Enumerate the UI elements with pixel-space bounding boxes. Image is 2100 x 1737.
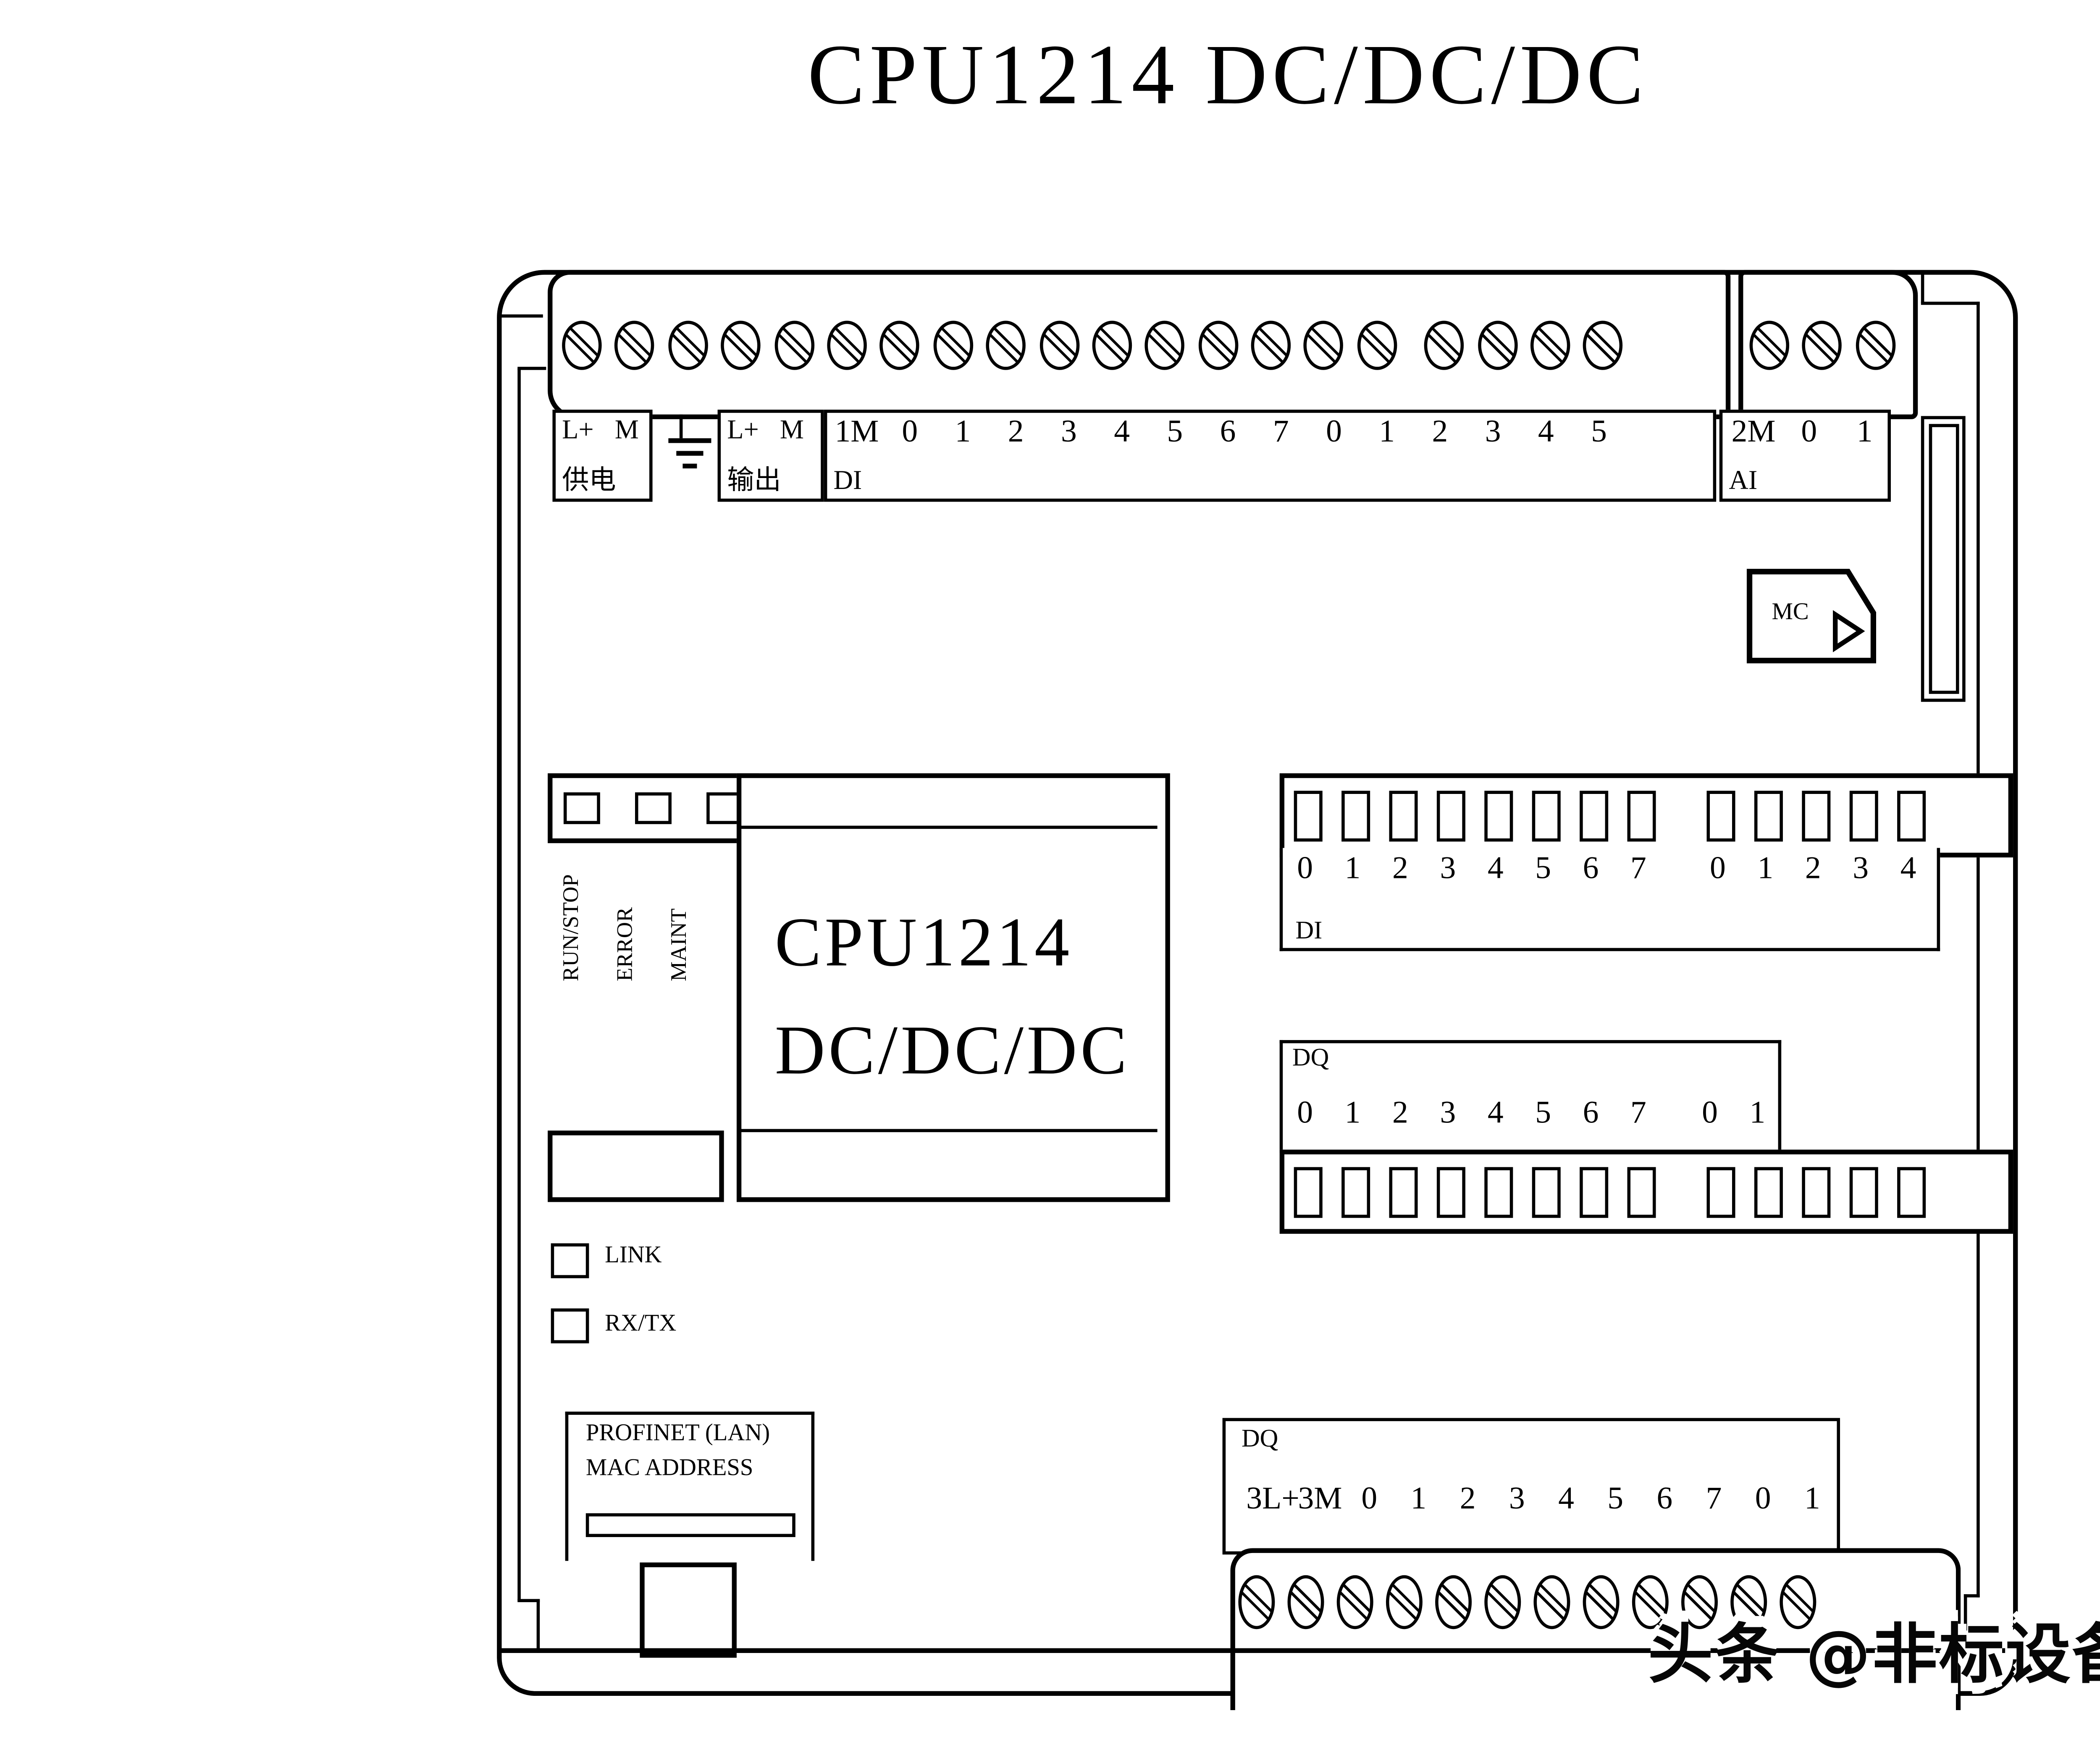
top-terminal-strip xyxy=(548,270,1730,419)
di-terminal-pins: 1M01234567012345 xyxy=(830,415,1625,451)
cpu-panel-divider-top xyxy=(740,826,1157,829)
screw-terminal-icon[interactable] xyxy=(1251,320,1291,369)
power-terminals: L+ M xyxy=(562,415,639,447)
channel-led-icon xyxy=(1341,790,1370,841)
channel-led-icon xyxy=(1294,1166,1323,1217)
cpu-panel-divider-bottom xyxy=(740,1129,1157,1133)
cpu-model-line1: CPU1214 xyxy=(775,902,1073,983)
channel-led-icon xyxy=(1802,790,1830,841)
left-step-line xyxy=(517,367,546,370)
channel-led-icon xyxy=(1850,1166,1878,1217)
right-lip-line xyxy=(1921,275,1924,303)
right-channel-line xyxy=(1977,302,1980,1597)
output-label-box: L+ M 输出 xyxy=(718,410,824,502)
dq-caption: DQ xyxy=(1292,1045,1329,1073)
status-led-box xyxy=(548,773,759,843)
screw-terminal-icon[interactable] xyxy=(880,320,920,369)
rxtx-led xyxy=(551,1309,589,1343)
mode-selector-box xyxy=(548,1130,724,1202)
screw-terminal-icon[interactable] xyxy=(1386,1575,1423,1629)
screw-terminal-icon[interactable] xyxy=(1583,1575,1620,1629)
dq-terminal-label-box: DQ 3L+3M0123456701 xyxy=(1223,1418,1840,1555)
profinet-box: PROFINET (LAN) MAC ADDRESS xyxy=(565,1411,814,1561)
screw-terminal-icon[interactable] xyxy=(1238,1575,1275,1629)
screw-terminal-icon[interactable] xyxy=(827,320,867,369)
earth-ground-icon xyxy=(667,415,718,472)
run-stop-label: RUN/STOP xyxy=(556,841,591,981)
channel-led-icon xyxy=(1897,790,1926,841)
channel-led-icon xyxy=(1437,1166,1465,1217)
screw-terminal-icon[interactable] xyxy=(615,320,655,369)
channel-led-icon xyxy=(1627,1166,1656,1217)
screw-terminal-icon[interactable] xyxy=(774,320,814,369)
di-led-numbers: 0123456701234 xyxy=(1281,851,1932,888)
mac-address-label: MAC ADDRESS xyxy=(586,1456,753,1483)
dq-number-box: DQ 0123456701 xyxy=(1280,1040,1781,1153)
channel-led-icon xyxy=(1294,790,1323,841)
cpu-model-line2: DC/DC/DC xyxy=(775,1010,1130,1091)
screw-terminal-icon[interactable] xyxy=(1357,320,1397,369)
channel-led-icon xyxy=(1707,790,1735,841)
channel-led-icon xyxy=(1532,790,1561,841)
channel-led-icon xyxy=(1389,790,1418,841)
screw-terminal-icon[interactable] xyxy=(1198,320,1238,369)
channel-led-icon xyxy=(1850,790,1878,841)
cpu-front-panel xyxy=(737,773,1170,1202)
left-bottom-edge-line xyxy=(537,1599,540,1653)
channel-led-icon xyxy=(1754,790,1783,841)
screw-terminal-icon[interactable] xyxy=(1478,320,1517,369)
channel-led-icon xyxy=(1532,1166,1561,1217)
screw-terminal-icon[interactable] xyxy=(1856,320,1895,369)
memory-card-icon: MC xyxy=(1746,568,1883,664)
link-label: LINK xyxy=(605,1243,661,1270)
screw-terminal-icon[interactable] xyxy=(668,320,708,369)
dq-led-strip xyxy=(1280,1150,2013,1234)
channel-led-icon xyxy=(1707,1166,1735,1217)
screw-terminal-icon[interactable] xyxy=(1530,320,1570,369)
screw-terminal-icon[interactable] xyxy=(562,320,602,369)
left-inner-edge-line xyxy=(517,368,521,1600)
screw-terminal-icon[interactable] xyxy=(1337,1575,1373,1629)
error-led xyxy=(635,792,672,824)
page-title: CPU1214 DC/DC/DC xyxy=(0,25,2100,124)
channel-led-icon xyxy=(1437,790,1465,841)
di-terminal-caption: DI xyxy=(834,465,862,497)
memory-card-slot-opening xyxy=(1928,424,1958,694)
dq-terminal-pins: 3L+3M0123456701 xyxy=(1246,1482,1837,1518)
channel-led-icon xyxy=(1754,1166,1783,1217)
ethernet-port[interactable] xyxy=(640,1563,737,1658)
channel-led-icon xyxy=(1389,1166,1418,1217)
channel-led-icon xyxy=(1484,1166,1513,1217)
channel-led-icon xyxy=(1580,790,1608,841)
di-led-strip xyxy=(1280,773,2013,857)
screw-terminal-icon[interactable] xyxy=(1750,320,1790,369)
channel-led-icon xyxy=(1627,790,1656,841)
di-terminal-label-box: 1M01234567012345 DI xyxy=(824,410,1716,502)
screw-terminal-icon[interactable] xyxy=(1533,1575,1570,1629)
link-led xyxy=(551,1243,589,1278)
dq-led-numbers: 0123456701 xyxy=(1281,1096,1781,1132)
ai-terminal-strip xyxy=(1738,270,1918,419)
corner-line xyxy=(499,314,543,318)
error-label: ERROR xyxy=(610,883,645,981)
screw-terminal-icon[interactable] xyxy=(1288,1575,1324,1629)
screw-terminal-icon[interactable] xyxy=(1484,1575,1521,1629)
screw-terminal-icon[interactable] xyxy=(1304,320,1344,369)
channel-led-icon xyxy=(1341,1166,1370,1217)
screw-terminal-icon[interactable] xyxy=(1803,320,1843,369)
plc-wiring-diagram: CPU1214 DC/DC/DC MC L+ M 供电 L+ M 输出 xyxy=(0,0,2100,1737)
screw-terminal-icon[interactable] xyxy=(933,320,973,369)
di-caption: DI xyxy=(1295,918,1322,946)
power-label-box: L+ M 供电 xyxy=(552,410,652,502)
ai-terminal-pins: 2M01 xyxy=(1726,415,1893,451)
screw-terminal-icon[interactable] xyxy=(721,320,761,369)
output-caption: 输出 xyxy=(727,457,781,497)
di-number-box: 0123456701234 DI xyxy=(1280,848,1940,951)
ai-terminal-label-box: 2M01 AI xyxy=(1719,410,1891,502)
profinet-label: PROFINET (LAN) xyxy=(586,1421,770,1448)
channel-led-icon xyxy=(1802,1166,1830,1217)
channel-led-icon xyxy=(1897,1166,1926,1217)
screw-terminal-icon[interactable] xyxy=(1583,320,1623,369)
mac-address-bar xyxy=(586,1513,795,1537)
ai-terminal-caption: AI xyxy=(1729,465,1757,497)
watermark: 头条 @非标设备自动化设计 xyxy=(1648,1600,2100,1696)
power-caption: 供电 xyxy=(562,457,616,497)
dq-bottom-caption: DQ xyxy=(1242,1426,1278,1454)
run-stop-led xyxy=(564,792,600,824)
memory-card-slot[interactable] xyxy=(1921,416,1966,702)
screw-terminal-icon[interactable] xyxy=(1039,320,1079,369)
screw-terminal-icon[interactable] xyxy=(1092,320,1132,369)
screw-terminal-icon[interactable] xyxy=(1435,1575,1472,1629)
rxtx-label: RX/TX xyxy=(605,1311,676,1338)
screw-terminal-icon[interactable] xyxy=(986,320,1026,369)
channel-led-icon xyxy=(1484,790,1513,841)
screw-terminal-icon[interactable] xyxy=(1425,320,1465,369)
maint-label: MAINT xyxy=(664,889,698,981)
channel-led-icon xyxy=(1580,1166,1608,1217)
screw-terminal-icon[interactable] xyxy=(1145,320,1185,369)
output-terminals: L+ M xyxy=(727,415,804,447)
right-step-line xyxy=(1921,302,1980,305)
memory-card-label: MC xyxy=(1772,600,1809,627)
